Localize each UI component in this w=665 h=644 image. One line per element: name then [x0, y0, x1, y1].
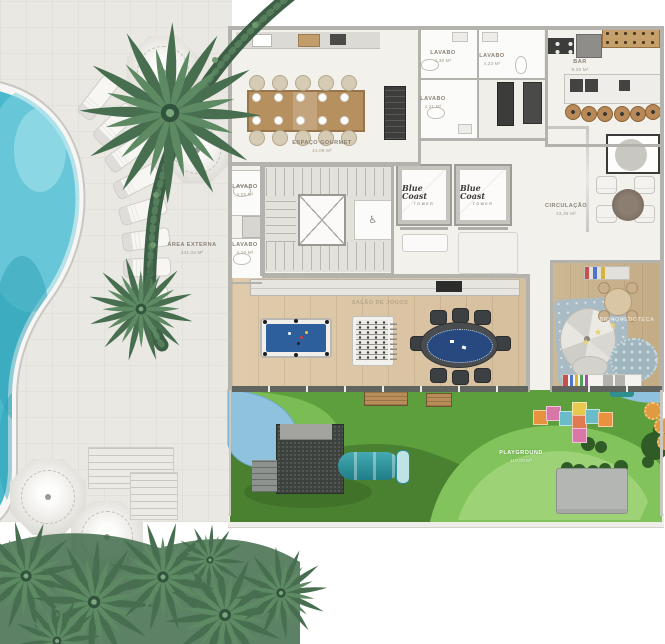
outdoor-stairs [130, 472, 178, 520]
climber-roof [280, 424, 332, 440]
wall-top [228, 26, 664, 30]
elevator-cab: Blue Coast TOWER [460, 170, 506, 220]
bar-stool [597, 106, 613, 122]
bar-stool [614, 106, 630, 122]
games-window-band [232, 386, 528, 392]
wall-lavleft-divider [260, 166, 262, 276]
room-name: LAVABO [232, 242, 257, 248]
wall-lavabo-mid [418, 78, 478, 80]
room-name: BRINQUEDOTECA [599, 317, 654, 323]
billiards-pocket [294, 319, 298, 323]
wall-lavabo-divider [477, 30, 479, 138]
room-label-espaco-gourmet: ESPAÇO GOURMET 41,08 m² [282, 140, 362, 155]
sideboard [250, 279, 520, 296]
round-rug [612, 189, 644, 221]
room-label-lavabo-top3: LAVABO 4,21 m² [393, 96, 473, 111]
washbasin [452, 32, 468, 42]
place-setting [274, 93, 283, 102]
billiard-ball [288, 332, 291, 335]
tv-screen [436, 281, 462, 292]
parasol-pole [104, 534, 110, 540]
wall-bar-bottom [545, 144, 662, 147]
billiards-pocket [294, 353, 298, 357]
room-label-circulacao: CIRCULAÇÃO 43,35 m² [526, 203, 606, 218]
place-setting [274, 116, 283, 125]
dining-chair [295, 75, 311, 91]
park-bench [426, 393, 452, 407]
dining-chair [249, 75, 265, 91]
place-setting [318, 93, 327, 102]
room-label-playground: PLAYGROUND 110,00 m² [481, 450, 561, 465]
room-area: 43,35 m² [526, 211, 606, 218]
wall-lavleft-bottom [228, 282, 262, 284]
kitchen-appliance [330, 34, 346, 45]
dining-chair [272, 75, 288, 91]
billiards-felt [266, 324, 326, 352]
climber-ladder [252, 460, 277, 492]
dining-chair [318, 75, 334, 91]
room-name: BAR [573, 59, 586, 65]
bar-sink [570, 79, 583, 92]
duct-shaft [242, 216, 262, 238]
elevator-sill [458, 227, 508, 230]
place-setting [340, 116, 349, 125]
washbasin [482, 32, 498, 42]
room-area: 4,23 m² [452, 61, 532, 68]
playground-right-edge [660, 390, 663, 516]
room-area: 4,21 m² [393, 104, 473, 111]
bar-shelf [602, 28, 660, 48]
partition-rail [546, 126, 586, 129]
card-table-top [427, 329, 493, 363]
slide-exit [396, 450, 410, 484]
room-name: SALÃO DE JOGOS [352, 300, 409, 306]
wall-bar-left [545, 28, 548, 147]
dining-chair [249, 130, 265, 146]
elevator-brand-sub: TOWER [414, 202, 434, 206]
wall-games-right [526, 278, 530, 392]
room-name: CIRCULAÇÃO [545, 203, 587, 209]
room-label-salao-de-jogos: SALÃO DE JOGOS [340, 300, 420, 308]
counter-unit [576, 34, 602, 58]
room-label-bar: BAR 9,35 m² [540, 59, 620, 74]
bar-stool [630, 106, 646, 122]
game-chair [452, 370, 469, 385]
gazebo-parasol [127, 36, 199, 108]
cutting-board [298, 34, 320, 47]
place-setting [252, 93, 261, 102]
foosball-handles [390, 320, 397, 360]
room-label-area-externa: ÁREA EXTERNA 441,04 m² [152, 242, 232, 257]
park-bench [364, 391, 408, 406]
dining-chair [341, 75, 357, 91]
room-label-lavabo-left1: LAVABO 4,05 m² [205, 184, 285, 199]
elevator-sill [400, 227, 448, 230]
room-name: ESPAÇO GOURMET [292, 140, 351, 146]
bar-stool [645, 104, 661, 120]
washbasin [458, 124, 472, 134]
elevator-brand-logo: Blue Coast [460, 184, 506, 200]
room-label-brinquedoteca: BRINQUEDOTECA [587, 317, 665, 325]
game-chair [430, 368, 447, 383]
bar-stool [581, 106, 597, 122]
billiard-ball [305, 331, 308, 334]
room-name: LAVABO [479, 53, 504, 59]
foosball-field [356, 320, 388, 360]
place-setting [296, 93, 305, 102]
game-chair [452, 308, 469, 323]
room-area: 110,00 m² [481, 458, 561, 465]
billiards-pocket [325, 320, 329, 324]
armchair [596, 176, 617, 194]
playroom-walls [550, 260, 662, 392]
wall-lavabos-bottom [418, 138, 547, 141]
room-name: PLAYGROUND [499, 450, 543, 456]
parasol-pole [194, 147, 200, 153]
room-area: 9,35 m² [540, 67, 620, 74]
place-setting [296, 116, 305, 125]
room-name: LAVABO [420, 96, 445, 102]
sun-lounger [123, 257, 172, 278]
place-setting [340, 93, 349, 102]
room-name: LAVABO [232, 184, 257, 190]
floor-plan-canvas: ♿ Blue Coast TOWER Blue Coast TOWER [0, 0, 665, 644]
billiard-ball [300, 336, 303, 339]
wall-left [228, 26, 232, 392]
hopscotch-square [572, 428, 587, 443]
wall-lavabo2-mid [478, 78, 545, 80]
parasol-pole [160, 69, 166, 75]
elevator-brand-sub: TOWER [473, 202, 493, 206]
room-area: 4,05 m² [205, 192, 285, 199]
billiards-pocket [263, 320, 267, 324]
play-platform [556, 468, 628, 514]
billiards-pocket [325, 352, 329, 356]
hopscotch-square [598, 412, 613, 427]
room-label-lavabo-top2: LAVABO 4,23 m² [452, 53, 532, 68]
playing-card [450, 340, 454, 343]
playground-edge [229, 390, 231, 516]
room-area: 441,04 m² [152, 250, 232, 257]
kitchen-sink [252, 34, 272, 47]
tube-slide [338, 452, 400, 480]
wall-hall-bottom [262, 274, 530, 278]
stair-core-walls [262, 164, 394, 276]
place-setting [252, 116, 261, 125]
room-area: 41,08 m² [282, 148, 362, 155]
grill-station [384, 86, 406, 140]
bar-stool [565, 104, 581, 120]
billiards-pocket [263, 352, 267, 356]
parasol-pole [45, 494, 51, 500]
sun-lounger [120, 284, 169, 305]
game-chair [474, 310, 491, 325]
pantry-cabinet [523, 82, 542, 124]
cooktop [548, 38, 574, 54]
hall-cabinet [458, 232, 518, 274]
place-setting [318, 116, 327, 125]
elevator-brand-logo: Blue Coast [402, 184, 446, 200]
bar-sink [619, 80, 630, 91]
game-chair [474, 368, 491, 383]
room-name: ÁREA EXTERNA [167, 242, 216, 248]
billiard-ball [297, 342, 300, 345]
elevator-cab: Blue Coast TOWER [402, 170, 446, 220]
hall-console-table [402, 234, 448, 252]
refrigerator [497, 82, 514, 126]
bar-sink [585, 79, 598, 92]
playroom-window-band [552, 386, 662, 392]
